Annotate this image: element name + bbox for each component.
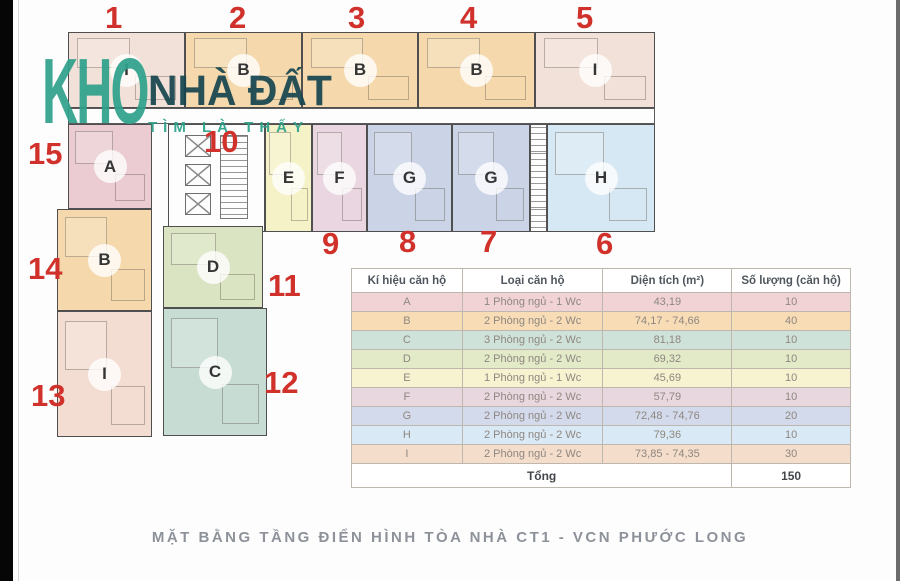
total-value: 150: [732, 464, 851, 488]
plan-unit-9: F: [312, 124, 367, 232]
cell-type: 2 Phòng ngủ - 2 Wc: [462, 312, 603, 331]
cell-quantity: 10: [732, 388, 851, 407]
unit-letter-badge: A: [94, 150, 127, 183]
plan-unit-12: C: [163, 308, 267, 436]
cell-code: B: [352, 312, 463, 331]
table-row-a: A 1 Phòng ngủ - 1 Wc 43,19 10: [352, 293, 851, 312]
unit-number-12: 12: [264, 367, 298, 398]
cell-code: C: [352, 331, 463, 350]
table-row-i: I 2 Phòng ngủ - 2 Wc 73,85 - 74,35 30: [352, 445, 851, 464]
unit-letter-badge: B: [227, 54, 260, 87]
plan-unit-3: B: [302, 32, 418, 108]
right-edge-bar: [896, 0, 900, 581]
unit-letter-badge: B: [344, 54, 377, 87]
cell-code: I: [352, 445, 463, 464]
unit-number-9: 9: [322, 228, 339, 259]
table-row-d: D 2 Phòng ngủ - 2 Wc 69,32 10: [352, 350, 851, 369]
cell-code: F: [352, 388, 463, 407]
cell-code: A: [352, 293, 463, 312]
apartment-table: Kí hiệu căn hộ Loại căn hộ Diện tích (m²…: [351, 268, 851, 488]
cell-area: 74,17 - 74,66: [603, 312, 732, 331]
unit-letter-badge: I: [88, 358, 121, 391]
stairwell-hatch: [530, 124, 547, 232]
cell-area: 81,18: [603, 331, 732, 350]
unit-number-13: 13: [31, 380, 65, 411]
cell-quantity: 10: [732, 350, 851, 369]
col-header-quantity: Số lượng (căn hộ): [732, 269, 851, 293]
cell-area: 45,69: [603, 369, 732, 388]
unit-letter-badge: D: [197, 251, 230, 284]
cell-code: E: [352, 369, 463, 388]
cell-area: 72,48 - 74,76: [603, 407, 732, 426]
cell-type: 1 Phòng ngủ - 1 Wc: [462, 369, 603, 388]
cell-code: H: [352, 426, 463, 445]
unit-number-5: 5: [576, 2, 593, 33]
col-header-area: Diện tích (m²): [603, 269, 732, 293]
plan-unit-1: I: [68, 32, 185, 108]
page-title: MẶT BẰNG TẦNG ĐIỂN HÌNH TÒA NHÀ CT1 - VC…: [20, 529, 880, 546]
unit-number-3: 3: [348, 2, 365, 33]
plan-unit-8: G: [367, 124, 452, 232]
cell-area: 43,19: [603, 293, 732, 312]
cell-quantity: 10: [732, 331, 851, 350]
cell-type: 2 Phòng ngủ - 2 Wc: [462, 426, 603, 445]
plan-unit-5: I: [535, 32, 655, 108]
table-row-e: E 1 Phòng ngủ - 1 Wc 45,69 10: [352, 369, 851, 388]
left-divider-line: [18, 0, 19, 581]
table-row-g: G 2 Phòng ngủ - 2 Wc 72,48 - 74,76 20: [352, 407, 851, 426]
plan-unit-13: I: [57, 311, 152, 437]
unit-number-4: 4: [460, 2, 477, 33]
cell-area: 69,32: [603, 350, 732, 369]
unit-letter-badge: F: [323, 162, 356, 195]
table-total-row: Tổng 150: [352, 464, 851, 488]
cell-quantity: 40: [732, 312, 851, 331]
cell-quantity: 30: [732, 445, 851, 464]
unit-number-8: 8: [399, 226, 416, 257]
cell-code: D: [352, 350, 463, 369]
cell-type: 2 Phòng ngủ - 2 Wc: [462, 350, 603, 369]
elevator-icon: [185, 193, 211, 215]
unit-number-15: 15: [28, 138, 62, 169]
cell-area: 73,85 - 74,35: [603, 445, 732, 464]
unit-letter-badge: G: [475, 162, 508, 195]
plan-unit-14: B: [57, 209, 152, 311]
unit-number-6: 6: [596, 228, 613, 259]
cell-area: 57,79: [603, 388, 732, 407]
plan-unit-7: G: [452, 124, 530, 232]
cell-quantity: 10: [732, 369, 851, 388]
unit-letter-badge: H: [585, 162, 618, 195]
floor-plan-page: I B B B I E F G G H A B: [0, 0, 900, 581]
col-header-code: Kí hiệu căn hộ: [352, 269, 463, 293]
cell-area: 79,36: [603, 426, 732, 445]
cell-type: 2 Phòng ngủ - 2 Wc: [462, 388, 603, 407]
cell-type: 3 Phòng ngủ - 2 Wc: [462, 331, 603, 350]
col-header-type: Loại căn hộ: [462, 269, 603, 293]
corridor: [68, 108, 655, 124]
table-row-h: H 2 Phòng ngủ - 2 Wc 79,36 10: [352, 426, 851, 445]
table-header-row: Kí hiệu căn hộ Loại căn hộ Diện tích (m²…: [352, 269, 851, 293]
cell-code: G: [352, 407, 463, 426]
table-row-f: F 2 Phòng ngủ - 2 Wc 57,79 10: [352, 388, 851, 407]
cell-quantity: 20: [732, 407, 851, 426]
elevator-icon: [185, 164, 211, 186]
table-row-c: C 3 Phòng ngủ - 2 Wc 81,18 10: [352, 331, 851, 350]
table-row-b: B 2 Phòng ngủ - 2 Wc 74,17 - 74,66 40: [352, 312, 851, 331]
unit-number-1: 1: [105, 2, 122, 33]
unit-number-11: 11: [268, 270, 301, 301]
cell-type: 2 Phòng ngủ - 2 Wc: [462, 407, 603, 426]
unit-letter-badge: G: [393, 162, 426, 195]
left-black-bar: [0, 0, 13, 581]
unit-number-14: 14: [28, 253, 62, 284]
cell-quantity: 10: [732, 426, 851, 445]
cell-type: 2 Phòng ngủ - 2 Wc: [462, 445, 603, 464]
plan-unit-15: A: [68, 124, 152, 209]
cell-type: 1 Phòng ngủ - 1 Wc: [462, 293, 603, 312]
unit-letter-badge: I: [579, 54, 612, 87]
total-label: Tổng: [352, 464, 732, 488]
unit-letter-badge: C: [199, 356, 232, 389]
plan-unit-10: E: [265, 124, 312, 232]
plan-unit-6: H: [547, 124, 655, 232]
unit-number-7: 7: [480, 226, 497, 257]
unit-number-10: 10: [204, 126, 238, 157]
unit-letter-badge: I: [110, 54, 143, 87]
plan-unit-4: B: [418, 32, 535, 108]
unit-number-2: 2: [229, 2, 246, 33]
unit-letter-badge: B: [88, 244, 121, 277]
plan-unit-2: B: [185, 32, 302, 108]
unit-letter-badge: B: [460, 54, 493, 87]
unit-letter-badge: E: [272, 162, 305, 195]
cell-quantity: 10: [732, 293, 851, 312]
plan-unit-11: D: [163, 226, 263, 308]
